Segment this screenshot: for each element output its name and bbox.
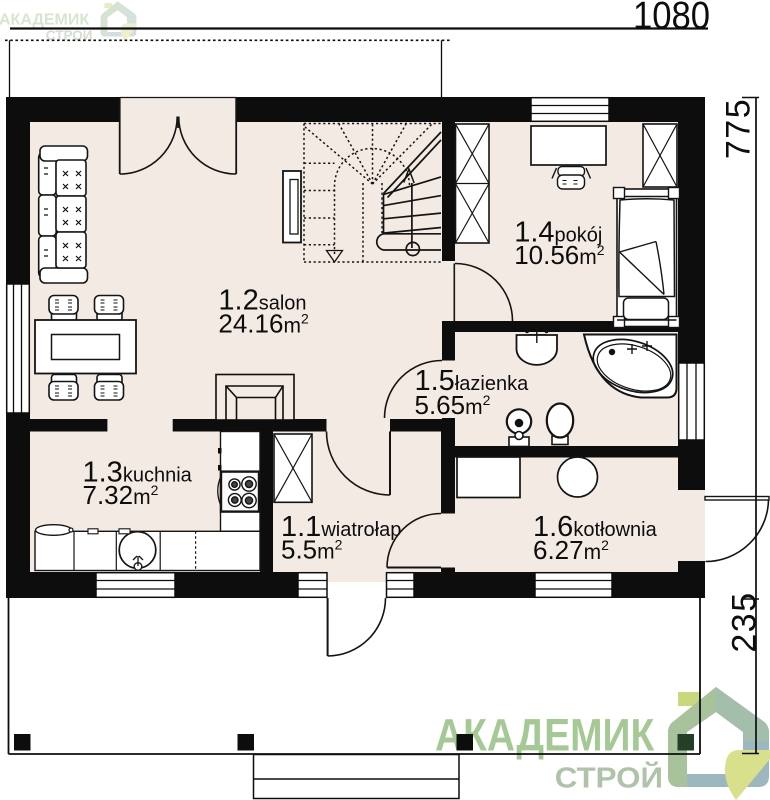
svg-text:235: 235 [726, 591, 764, 652]
svg-text:АКАДЕМИК: АКАДЕМИК [0, 12, 89, 29]
svg-text:СТРОЙ: СТРОЙ [555, 762, 663, 795]
svg-text:1080: 1080 [633, 0, 710, 37]
svg-text:775: 775 [720, 98, 758, 159]
